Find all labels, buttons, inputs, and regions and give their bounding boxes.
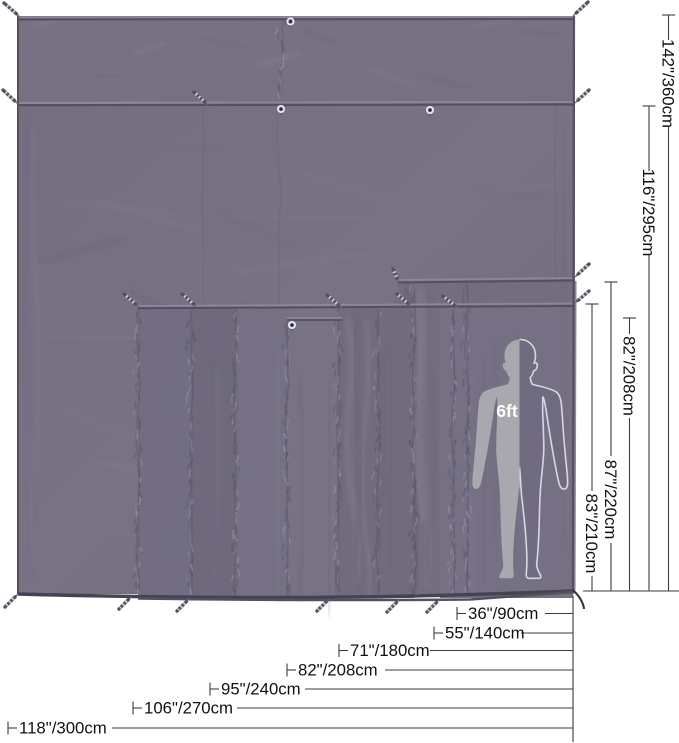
svg-text:87"/220cm: 87"/220cm bbox=[601, 460, 620, 540]
svg-text:82"/208cm: 82"/208cm bbox=[298, 661, 378, 680]
svg-text:83"/210cm: 83"/210cm bbox=[582, 494, 601, 574]
svg-text:36"/90cm: 36"/90cm bbox=[468, 604, 538, 623]
svg-text:6ft: 6ft bbox=[496, 401, 518, 421]
svg-text:118"/300cm: 118"/300cm bbox=[19, 719, 107, 738]
svg-text:106"/270cm: 106"/270cm bbox=[144, 699, 233, 718]
svg-text:142"/360cm: 142"/360cm bbox=[658, 39, 677, 128]
svg-text:82"/208cm: 82"/208cm bbox=[619, 336, 638, 416]
svg-text:71"/180cm: 71"/180cm bbox=[350, 641, 430, 660]
svg-text:55"/140cm: 55"/140cm bbox=[445, 624, 525, 643]
svg-text:95"/240cm: 95"/240cm bbox=[221, 680, 301, 699]
svg-text:116"/295cm: 116"/295cm bbox=[639, 169, 658, 257]
